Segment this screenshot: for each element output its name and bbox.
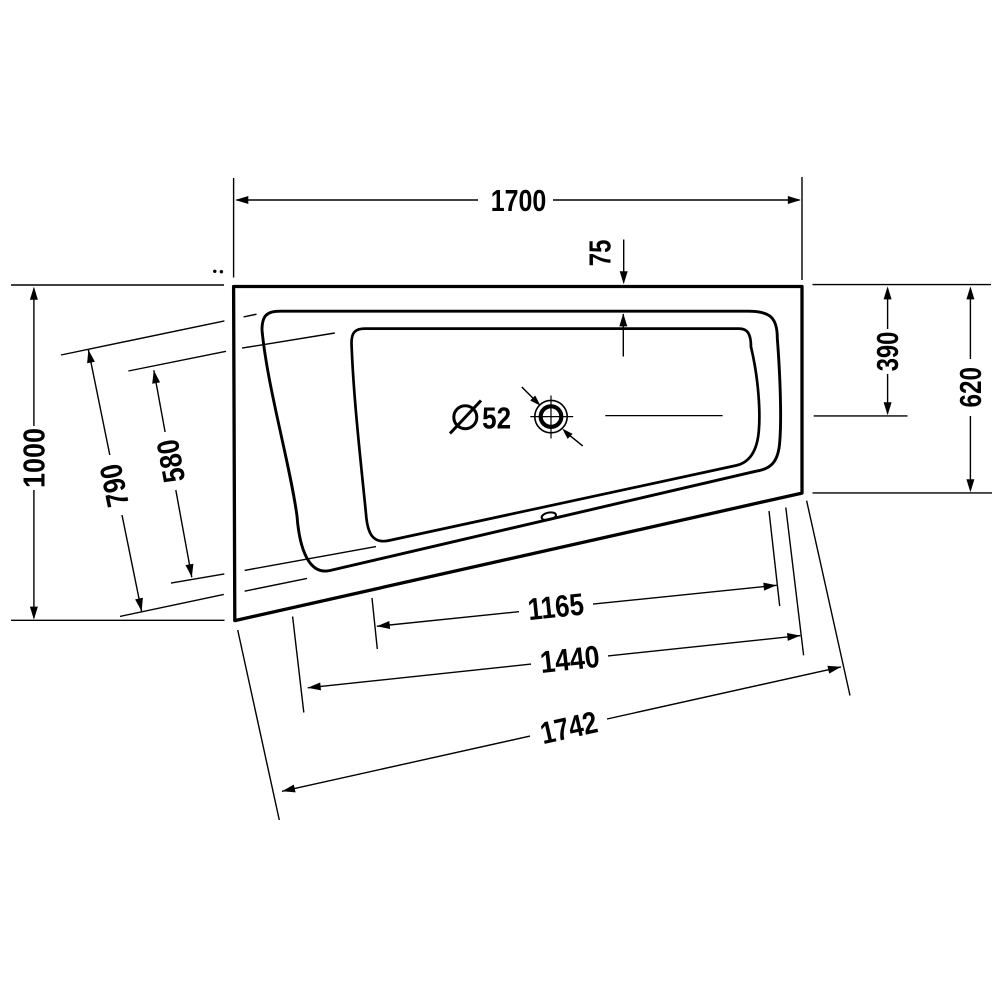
- svg-text:52: 52: [482, 401, 511, 436]
- svg-text:620: 620: [953, 367, 988, 408]
- svg-text:1440: 1440: [538, 639, 601, 680]
- svg-text:1700: 1700: [491, 183, 547, 218]
- svg-text:390: 390: [870, 332, 905, 372]
- svg-text:75: 75: [583, 240, 618, 267]
- svg-text:1165: 1165: [526, 587, 585, 628]
- svg-text:1000: 1000: [17, 428, 52, 488]
